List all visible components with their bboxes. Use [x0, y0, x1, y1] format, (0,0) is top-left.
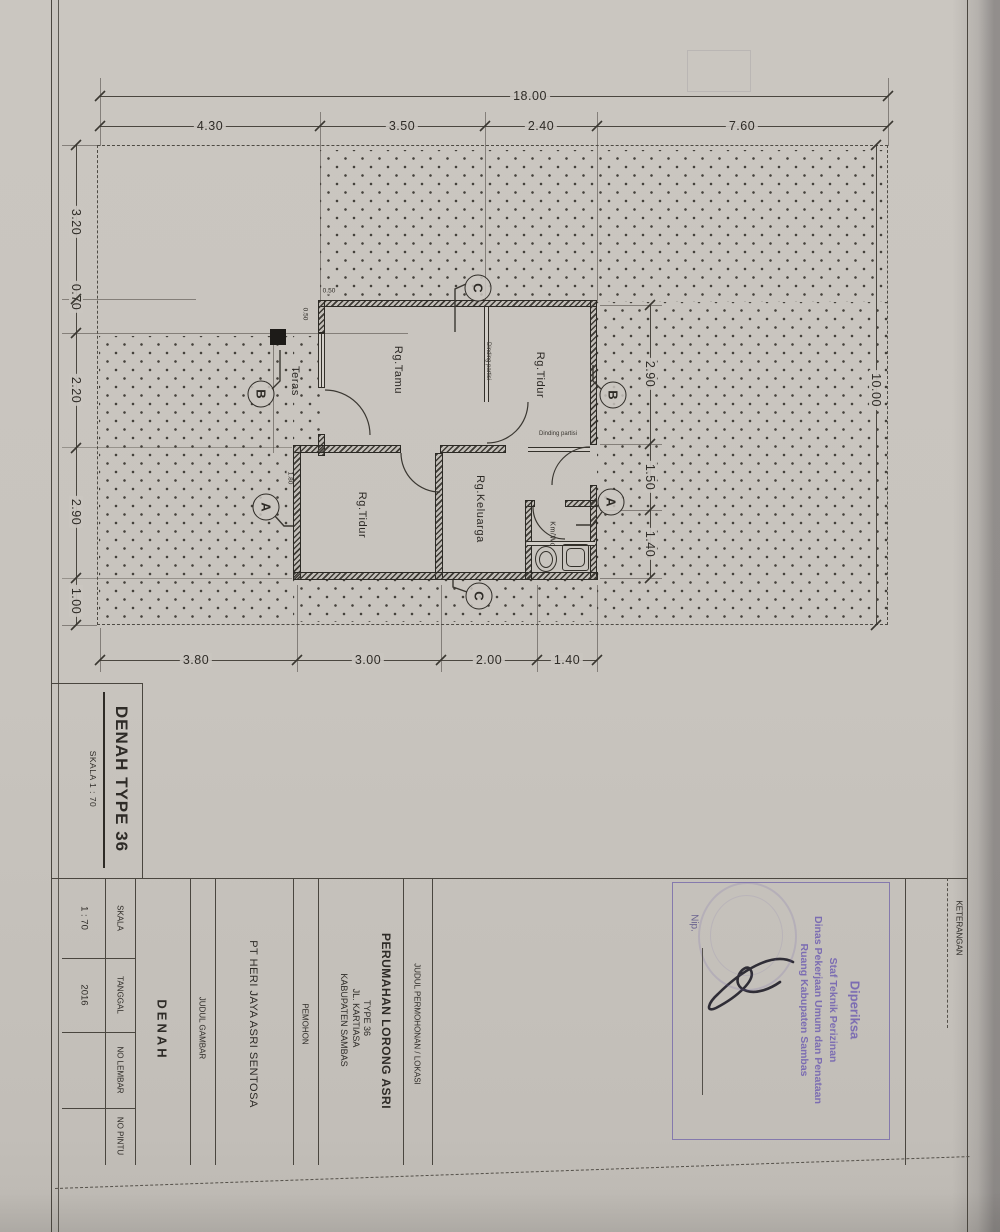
nip-label: Nip. — [689, 914, 700, 932]
room-label-teras: Teras — [289, 366, 301, 396]
heading-box-right-line — [142, 683, 143, 878]
paper-bottom-shadow — [0, 1192, 1000, 1232]
keterangan-label: KETERANGAN — [955, 900, 964, 955]
ext-line — [597, 112, 598, 302]
titleblock-divider — [318, 878, 319, 1165]
section-marker-a-right: A — [598, 489, 625, 516]
section-marker-b-right: B — [600, 382, 627, 409]
ext-line — [62, 578, 292, 579]
titleblock-divider — [432, 878, 433, 1165]
front-window — [318, 333, 325, 388]
dim-right-inner: 2.90 — [643, 358, 657, 390]
wall-note-partisi-h: Dinding partisi — [539, 431, 577, 437]
dim-bottom: 1.40 — [551, 653, 583, 667]
titleblock-divider — [905, 878, 906, 1165]
paper-right-edge-shadow — [952, 0, 1000, 1232]
ext-line — [62, 333, 408, 334]
dim-left: 0.70 — [69, 281, 83, 313]
ext-line — [485, 112, 486, 300]
wall-bottom — [293, 572, 598, 580]
room-label-tidur-bawah: Rg.Tidur — [356, 492, 368, 539]
sheet-border-right — [967, 0, 968, 1232]
room-label-tamu: Rg.Tamu — [392, 346, 404, 394]
wall-interior-vertical — [435, 453, 443, 580]
wall-note-partisi-v: Dinding partisi — [485, 342, 491, 380]
heading-box-top-line — [51, 683, 142, 684]
skala-label: SKALA — [116, 905, 125, 931]
dim-top-total: 18.00 — [510, 89, 550, 103]
ext-line — [537, 585, 538, 672]
ext-line — [100, 78, 101, 146]
lokasi-line-1: PERUMAHAN LORONG ASRI — [379, 933, 393, 1109]
sheet-border-left-outer — [51, 0, 52, 1232]
round-stamp-ghost-inner — [710, 895, 783, 976]
titleblock-row-line — [62, 1108, 135, 1109]
ext-line — [62, 145, 98, 146]
dim-right-inner: 1.40 — [643, 528, 657, 560]
titleblock-top-line — [51, 878, 967, 879]
ext-line — [600, 578, 662, 579]
room-label-kmwc: Km/Wc — [549, 521, 556, 547]
tanggal-label: TANGGAL — [116, 976, 125, 1014]
titleblock-row-line — [62, 958, 135, 959]
no-lembar-label: NO LEMBAR — [116, 1046, 125, 1093]
tanggal-value: 2016 — [79, 984, 90, 1005]
dim-right-inner: 1.50 — [643, 461, 657, 493]
dim-left: 1.00 — [69, 585, 83, 617]
section-letter: C — [471, 591, 486, 600]
stamp-line-diperiksa: Diperiksa — [848, 981, 863, 1040]
pemohon-value: PT HERI JAYA ASRI SENTOSA — [247, 940, 259, 1108]
section-marker-c-top: C — [465, 275, 492, 302]
lokasi-line-2: TYPE 36 — [362, 1000, 372, 1036]
stamp-line-staf: Staf Teknik Perizinan — [827, 958, 839, 1063]
ext-line — [888, 78, 889, 146]
skala-value: 1 : 70 — [79, 906, 90, 930]
titleblock-divider — [215, 878, 216, 1165]
wall-mid-left — [293, 445, 401, 453]
judul-gambar-value: DENAH — [155, 999, 170, 1060]
dim-bottom: 3.00 — [352, 653, 384, 667]
ext-line — [597, 585, 598, 672]
judul-permohonan-label: JUDUL PERMOHONAN / LOKASI — [413, 963, 422, 1085]
dim-detail: 0.50 — [302, 307, 309, 322]
wall-right-upper — [590, 300, 597, 445]
section-marker-a-left: A — [253, 494, 280, 521]
ext-line — [600, 444, 662, 445]
ext-line — [297, 585, 298, 672]
titleblock-divider — [105, 878, 106, 1165]
titleblock-divider — [190, 878, 191, 1165]
dim-left: 2.90 — [69, 496, 83, 528]
stamp-line-ruang: Ruang Kabupaten Sambas — [798, 943, 810, 1076]
section-letter: B — [605, 390, 620, 399]
plan-scale: SKALA 1 : 70 — [88, 751, 98, 808]
teras-column — [270, 329, 286, 345]
titleblock-divider — [293, 878, 294, 1165]
ext-line — [62, 625, 97, 626]
titleblock-divider — [135, 878, 136, 1165]
pemohon-label: PEMOHON — [301, 1003, 310, 1044]
toilet-fixture-inner — [539, 551, 553, 568]
wall-kmwc-top-right — [565, 500, 597, 507]
section-letter: A — [603, 497, 618, 506]
ext-line — [600, 305, 662, 306]
lokasi-line-3: JL. KARTIASA — [351, 989, 361, 1048]
sheet-border-bottom — [55, 1156, 969, 1189]
dim-top-seg: 7.60 — [726, 119, 758, 133]
partition-wall-horizontal — [528, 447, 590, 452]
ext-line — [100, 628, 101, 672]
site-boundary — [97, 145, 888, 625]
dim-bottom: 3.80 — [180, 653, 212, 667]
wall-kmwc-left — [525, 500, 532, 580]
wall-front-upper — [318, 300, 325, 333]
dim-right-total: 10.00 — [869, 370, 883, 410]
wall-top — [318, 300, 597, 307]
bleed-through-artifact — [687, 50, 751, 92]
judul-gambar-label: JUDUL GAMBAR — [198, 997, 207, 1059]
wall-mid-right — [440, 445, 506, 453]
lokasi-line-4: KABUPATEN SAMBAS — [339, 973, 349, 1066]
room-label-keluarga: Rg.Keluarga — [474, 475, 486, 543]
no-pintu-label: NO PINTU — [116, 1117, 125, 1155]
heading-underline — [103, 692, 105, 868]
dim-top-seg: 3.50 — [386, 119, 418, 133]
sheet-border-left-inner — [58, 0, 59, 1232]
ext-line — [441, 585, 442, 672]
ext-line — [62, 447, 292, 448]
bak-mandi-inner — [566, 548, 585, 567]
plan-title: DENAH TYPE 36 — [111, 706, 131, 852]
keterangan-dashed-divider — [947, 878, 948, 1028]
titleblock-row-line — [62, 1032, 135, 1033]
section-marker-b-left: B — [248, 381, 275, 408]
dim-left: 2.20 — [69, 374, 83, 406]
section-letter: A — [258, 502, 273, 511]
stamp-line-dinas: Dinas Pekerjaan Umum dan Penataan — [812, 916, 824, 1104]
dim-left: 3.20 — [69, 206, 83, 238]
nip-underline — [702, 948, 703, 1095]
ext-line — [320, 112, 321, 300]
section-marker-c-bottom: C — [466, 583, 493, 610]
dim-detail: 0.50 — [322, 288, 337, 295]
dim-bottom: 2.00 — [473, 653, 505, 667]
dim-top-seg: 2.40 — [525, 119, 557, 133]
room-label-tidur-atas: Rg.Tidur — [534, 352, 546, 399]
section-letter: C — [470, 283, 485, 292]
scanned-floorplan-sheet: 18.00 4.30 3.50 2.40 7.60 3.20 0.70 2.20… — [0, 0, 1000, 1232]
titleblock-divider — [403, 878, 404, 1165]
dim-line-top-total — [100, 96, 888, 97]
section-letter: B — [253, 389, 268, 398]
dim-top-seg: 4.30 — [194, 119, 226, 133]
wall-lowerleft-vertical — [293, 445, 301, 580]
dim-line-bottom — [100, 660, 597, 661]
